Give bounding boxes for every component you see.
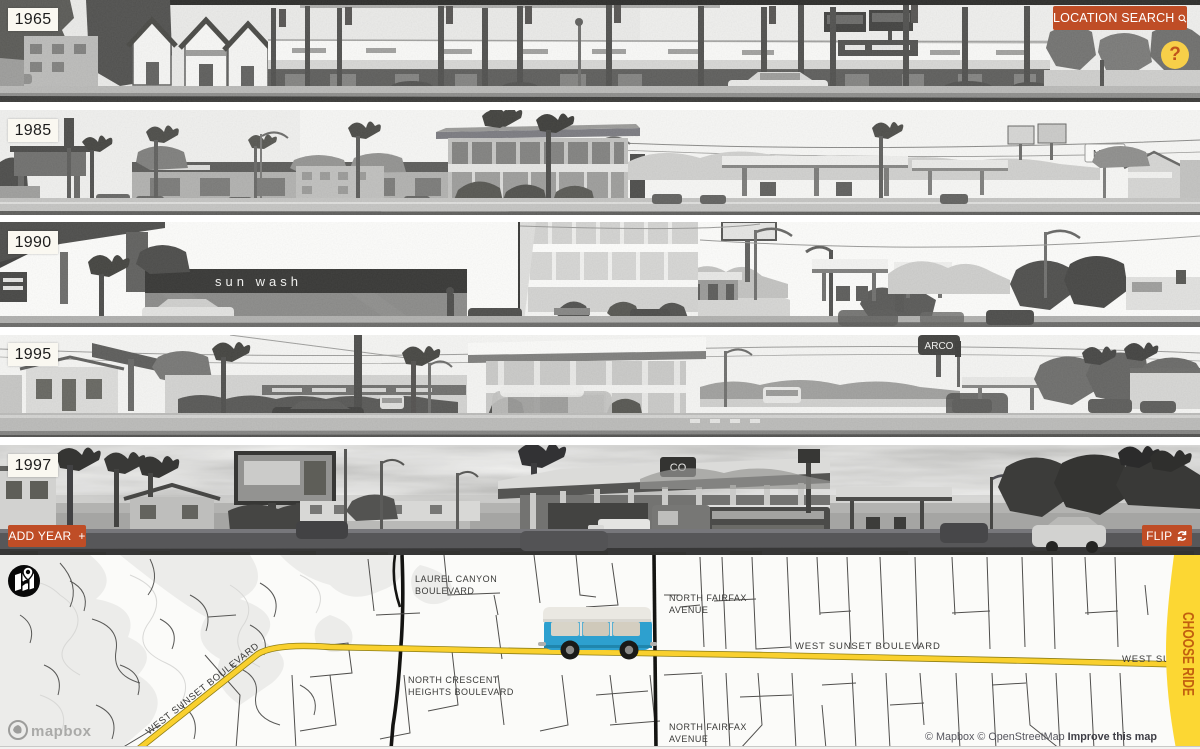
svg-text:NORTH FAIRFAX: NORTH FAIRFAX bbox=[669, 593, 747, 603]
svg-text:NORTH CRESCENT: NORTH CRESCENT bbox=[408, 675, 499, 685]
svg-text:CHOOSE RIDE: CHOOSE RIDE bbox=[1179, 612, 1196, 696]
svg-text:WEST SUNSET BOULEVARD: WEST SUNSET BOULEVARD bbox=[795, 641, 941, 652]
svg-text:WEST SU: WEST SU bbox=[1122, 654, 1171, 665]
svg-text:HEIGHTS BOULEVARD: HEIGHTS BOULEVARD bbox=[408, 687, 514, 697]
svg-text:AVENUE: AVENUE bbox=[669, 605, 708, 615]
svg-text:AVENUE: AVENUE bbox=[669, 734, 708, 744]
svg-text:mapbox: mapbox bbox=[31, 723, 92, 740]
svg-text:LAUREL CANYON: LAUREL CANYON bbox=[415, 574, 497, 584]
svg-text:NORTH FAIRFAX: NORTH FAIRFAX bbox=[669, 722, 747, 732]
svg-text:© Mapbox © OpenStreetMap Impro: © Mapbox © OpenStreetMap Improve this ma… bbox=[925, 731, 1157, 743]
svg-text:BOULEVARD: BOULEVARD bbox=[415, 586, 474, 596]
